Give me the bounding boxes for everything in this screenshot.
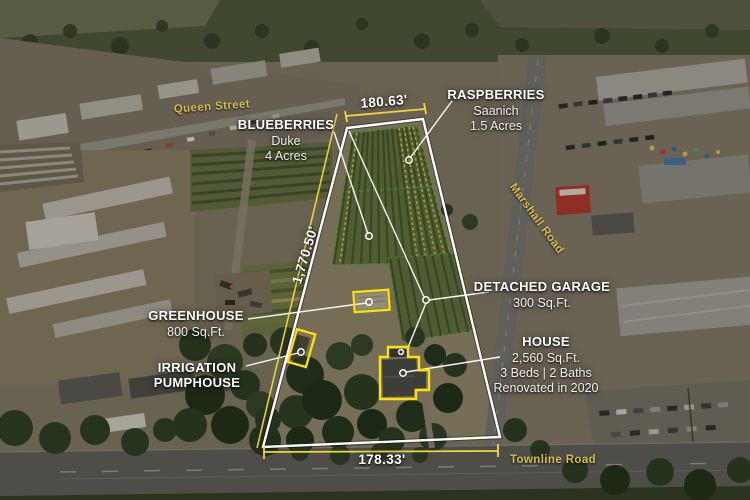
house-callout-label: HOUSE 2,560 Sq.Ft. 3 Beds | 2 Baths Reno… <box>494 335 599 395</box>
detached-garage-callout-label: DETACHED GARAGE 300 Sq.Ft. <box>474 280 610 310</box>
greenhouse-callout-label: GREENHOUSE 800 Sq.Ft. <box>148 309 243 339</box>
raspberries-title: RASPBERRIES <box>447 88 544 103</box>
raspberries-variety: Saanich <box>447 104 544 118</box>
blueberries-size: 4 Acres <box>238 149 334 163</box>
house-size: 2,560 Sq.Ft. <box>494 351 599 365</box>
townline-road-label: Townline Road <box>510 454 596 467</box>
irrigation-pumphouse-title-line1: IRRIGATION <box>154 361 241 376</box>
greenhouse-highlight-box <box>353 290 389 312</box>
greenhouse-size: 800 Sq.Ft. <box>148 325 243 339</box>
detached-garage-size: 300 Sq.Ft. <box>474 296 610 310</box>
raspberries-callout-label: RASPBERRIES Saanich 1.5 Acres <box>447 88 544 133</box>
detached-garage-title: DETACHED GARAGE <box>474 280 610 295</box>
aerial-property-photo: Queen Street 180.63' RASPBERRIES Saanich… <box>0 0 750 500</box>
house-title: HOUSE <box>494 335 599 350</box>
greenhouse-title: GREENHOUSE <box>148 309 243 324</box>
blueberries-variety: Duke <box>238 134 334 148</box>
bottom-frontage-measurement: 178.33' <box>358 452 405 467</box>
aerial-photo-canvas <box>0 0 750 500</box>
blueberries-title: BLUEBERRIES <box>238 118 334 133</box>
raspberries-size: 1.5 Acres <box>447 119 544 133</box>
house-beds-baths: 3 Beds | 2 Baths <box>494 366 599 380</box>
blueberries-callout-label: BLUEBERRIES Duke 4 Acres <box>238 118 334 163</box>
dim-overlay <box>0 0 750 500</box>
irrigation-pumphouse-title-line2: PUMPHOUSE <box>154 376 241 391</box>
house-renovated: Renovated in 2020 <box>494 381 599 395</box>
irrigation-pumphouse-callout-label: IRRIGATION PUMPHOUSE <box>154 361 241 390</box>
